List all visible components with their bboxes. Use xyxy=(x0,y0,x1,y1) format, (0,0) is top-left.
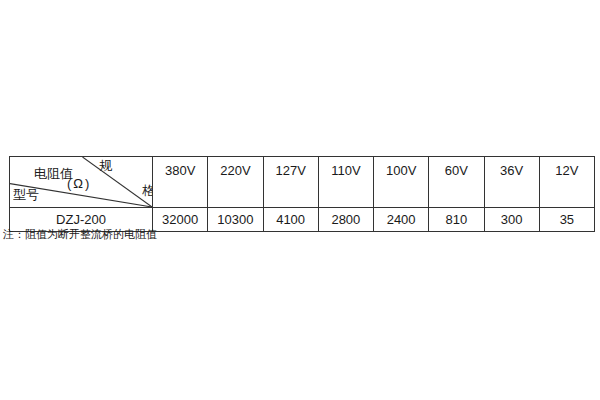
resistance-value-60v: 810 xyxy=(429,208,484,232)
voltage-header-380v: 380V xyxy=(153,157,208,208)
resistance-value-36v: 300 xyxy=(484,208,539,232)
voltage-header-127v: 127V xyxy=(263,157,318,208)
voltage-header-100v: 100V xyxy=(374,157,429,208)
spec-sheet-page: 规 格 电阻值 (Ω) 型号 380V 220V 127V 110V 100V … xyxy=(0,0,600,400)
resistance-spec-table: 规 格 电阻值 (Ω) 型号 380V 220V 127V 110V 100V … xyxy=(9,156,595,232)
resistance-value-100v: 2400 xyxy=(374,208,429,232)
diagonal-corner-cell: 规 格 电阻值 (Ω) 型号 xyxy=(10,157,153,208)
resistance-value-380v: 32000 xyxy=(153,208,208,232)
header-row: 规 格 电阻值 (Ω) 型号 380V 220V 127V 110V 100V … xyxy=(10,157,595,208)
voltage-header-110v: 110V xyxy=(318,157,373,208)
corner-spec-label-bottom: 格 xyxy=(142,184,153,197)
voltage-header-12v: 12V xyxy=(539,157,594,208)
resistance-value-12v: 35 xyxy=(539,208,594,232)
footnote: 注：阻值为断开整流桥的电阻值 xyxy=(3,227,157,241)
corner-unit-label: (Ω) xyxy=(67,177,91,190)
voltage-header-36v: 36V xyxy=(484,157,539,208)
resistance-value-220v: 10300 xyxy=(208,208,263,232)
voltage-header-60v: 60V xyxy=(429,157,484,208)
resistance-value-127v: 4100 xyxy=(263,208,318,232)
corner-spec-label-top: 规 xyxy=(99,159,112,172)
resistance-value-110v: 2800 xyxy=(318,208,373,232)
corner-model-label: 型号 xyxy=(13,188,39,201)
voltage-header-220v: 220V xyxy=(208,157,263,208)
